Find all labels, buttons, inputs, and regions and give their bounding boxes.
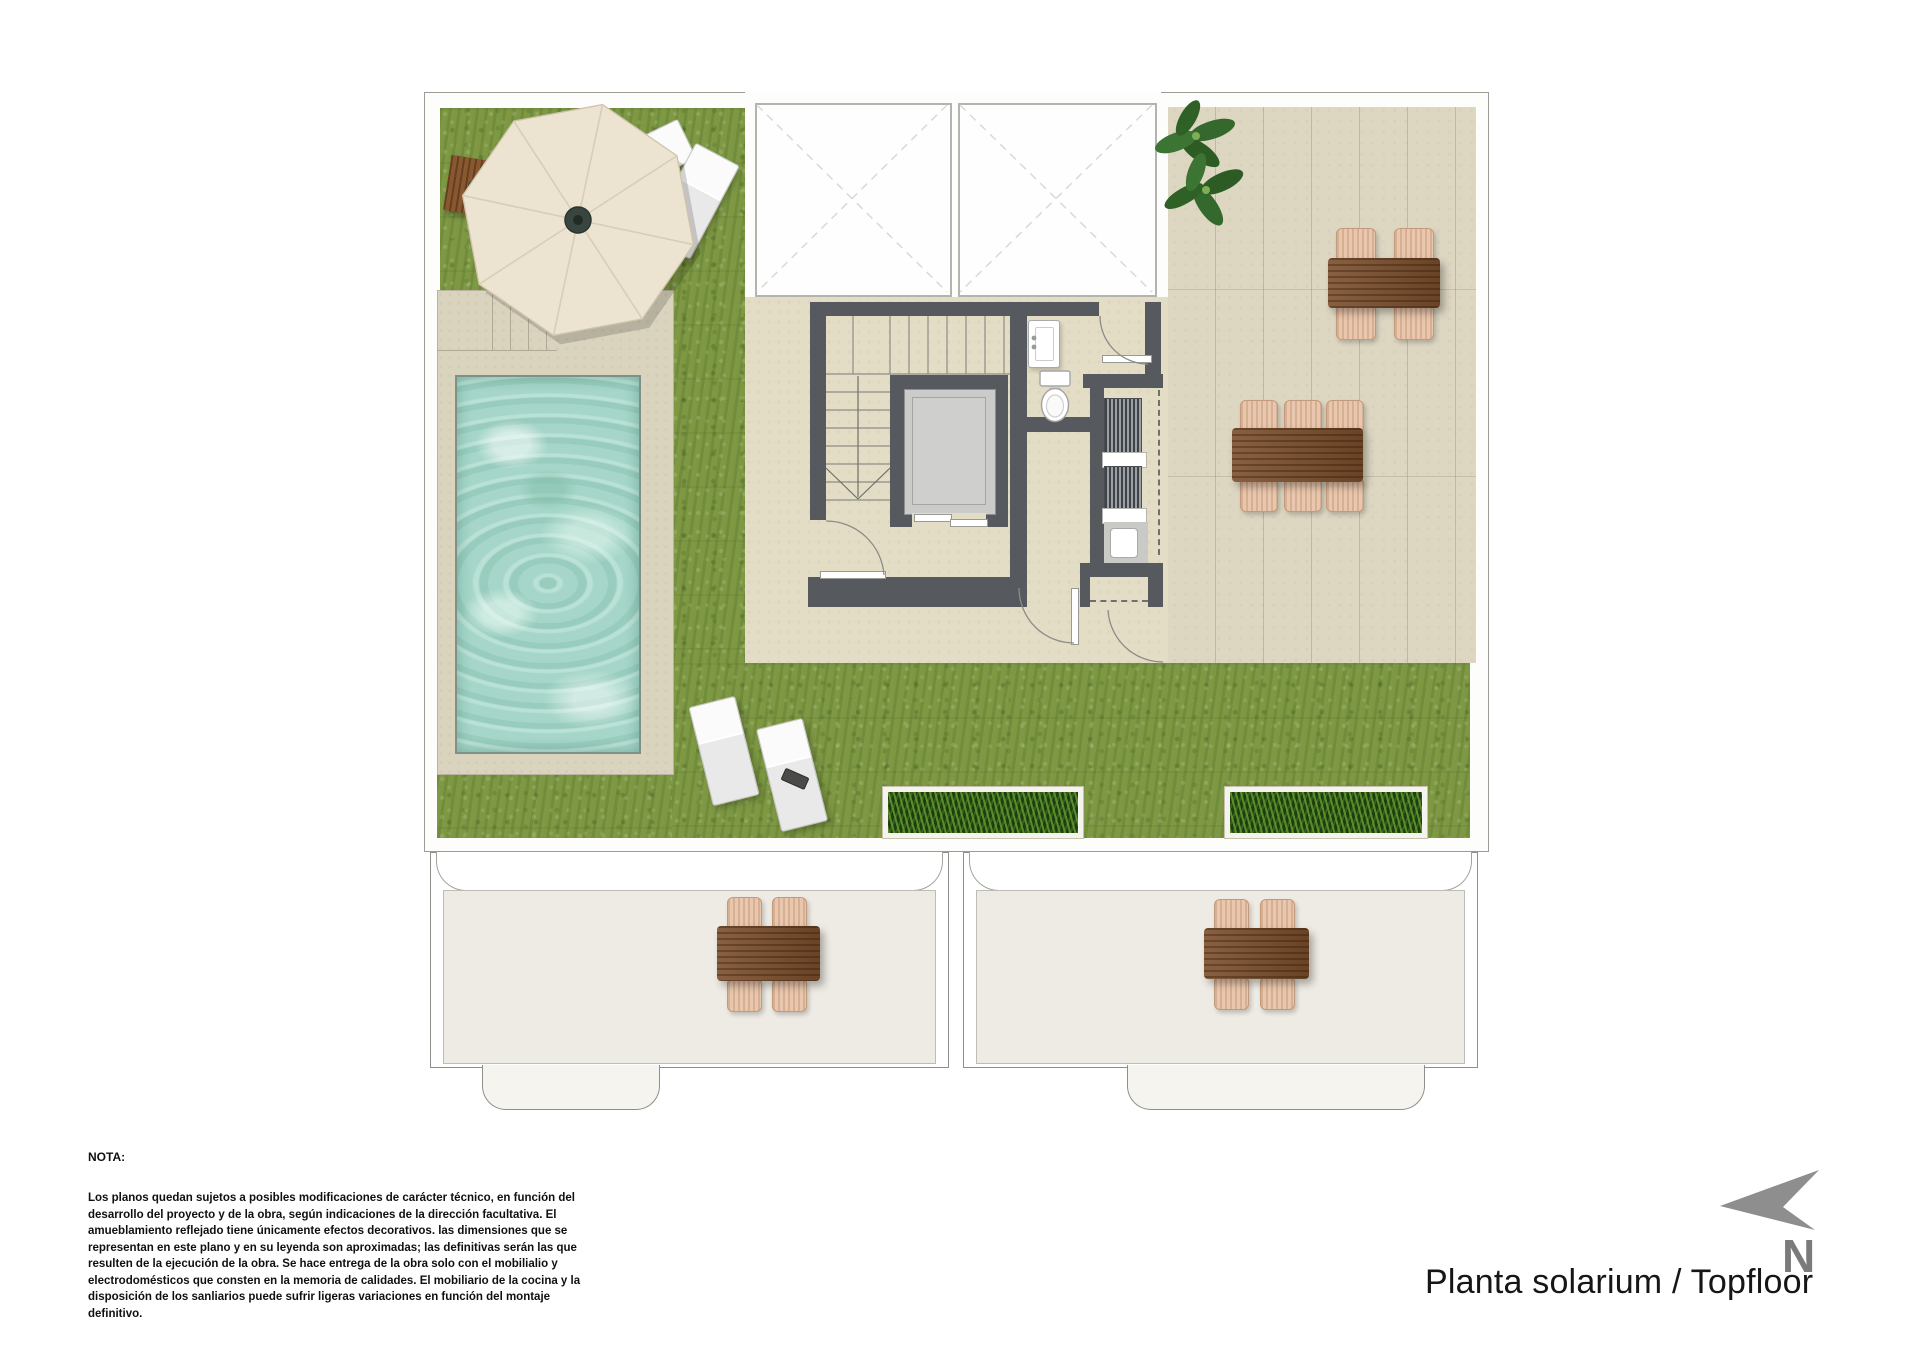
- north-arrow-icon: [1720, 1170, 1819, 1230]
- chair: [1394, 304, 1434, 340]
- wall-core-bottom: [808, 577, 1027, 607]
- elevator-cab: [912, 397, 986, 505]
- deck-step-line: [510, 292, 511, 350]
- deck-step-edge: [437, 350, 557, 351]
- lower-right-dining-table: [1204, 928, 1309, 979]
- wall-core-left: [810, 316, 826, 520]
- wall-elevator-top: [890, 375, 1008, 389]
- chair: [1214, 976, 1249, 1010]
- elevator-door-panel: [950, 519, 988, 527]
- chair: [1326, 478, 1364, 512]
- wall-closet-left: [1090, 388, 1104, 563]
- floor-plan-page: N NOTA: Los planos quedan sujetos a posi…: [0, 0, 1920, 1357]
- deck-step-line: [492, 292, 493, 350]
- lower-terrace-left-floor: [443, 890, 936, 1064]
- door-leaf-hall: [820, 571, 886, 579]
- lower-terrace-left-stair-notch: [482, 1065, 660, 1110]
- chair: [1260, 976, 1295, 1010]
- wall-toilet-niche: [1010, 417, 1095, 432]
- lower-left-dining-table: [717, 926, 820, 981]
- wall-elevator-left: [890, 389, 904, 513]
- roof-terrace: [1168, 107, 1476, 663]
- wall-core-top: [810, 302, 1099, 316]
- lower-terrace-left-eave: [436, 852, 943, 891]
- ventilation-louver-1: [1104, 398, 1142, 454]
- parasol-base: [443, 155, 497, 218]
- skylight-1: [755, 103, 952, 297]
- dining-table-6-seats: [1232, 428, 1363, 482]
- deck-step-line: [528, 292, 529, 350]
- wall-bathroom-divider: [1010, 316, 1027, 577]
- note-body: Los planos quedan sujetos a posibles mod…: [88, 1190, 600, 1322]
- lower-terrace-right-stair-notch: [1127, 1065, 1425, 1110]
- door-leaf-passage: [1071, 588, 1079, 645]
- wall-elevator-stub-right: [986, 513, 1008, 527]
- wall-closet-top: [1083, 374, 1163, 388]
- swimming-pool: [455, 375, 641, 754]
- skylight-2: [958, 103, 1157, 297]
- dashed-open-recess: [1090, 600, 1148, 602]
- chair: [1240, 478, 1278, 512]
- chair: [727, 978, 762, 1012]
- utility-appliance: [1110, 528, 1138, 558]
- chair: [1336, 304, 1376, 340]
- note-heading: NOTA:: [88, 1150, 125, 1164]
- wall-elevator-right: [994, 389, 1008, 513]
- deck-step-line: [546, 292, 547, 350]
- lower-terrace-right-eave: [969, 852, 1472, 891]
- door-leaf-bathroom: [1102, 355, 1152, 363]
- washbasin-bowl: [1035, 327, 1054, 361]
- wall-recess-right: [1148, 563, 1163, 607]
- washbasin: [1028, 320, 1060, 368]
- chair: [772, 978, 807, 1012]
- dashed-open-east: [1158, 390, 1160, 555]
- planter-1: [883, 787, 1083, 838]
- dining-table-4-seats: [1328, 258, 1440, 308]
- lawn-below-pool: [437, 773, 672, 838]
- elevator-door-panel: [914, 514, 952, 522]
- planter-2: [1225, 787, 1427, 838]
- ventilation-louver-2: [1104, 466, 1142, 510]
- wall-elevator-stub-left: [890, 513, 912, 527]
- towel: [781, 768, 810, 790]
- page-title: Planta solarium / Topfloor: [1425, 1263, 1813, 1302]
- chair: [1284, 478, 1322, 512]
- wall-recess-left: [1080, 577, 1090, 607]
